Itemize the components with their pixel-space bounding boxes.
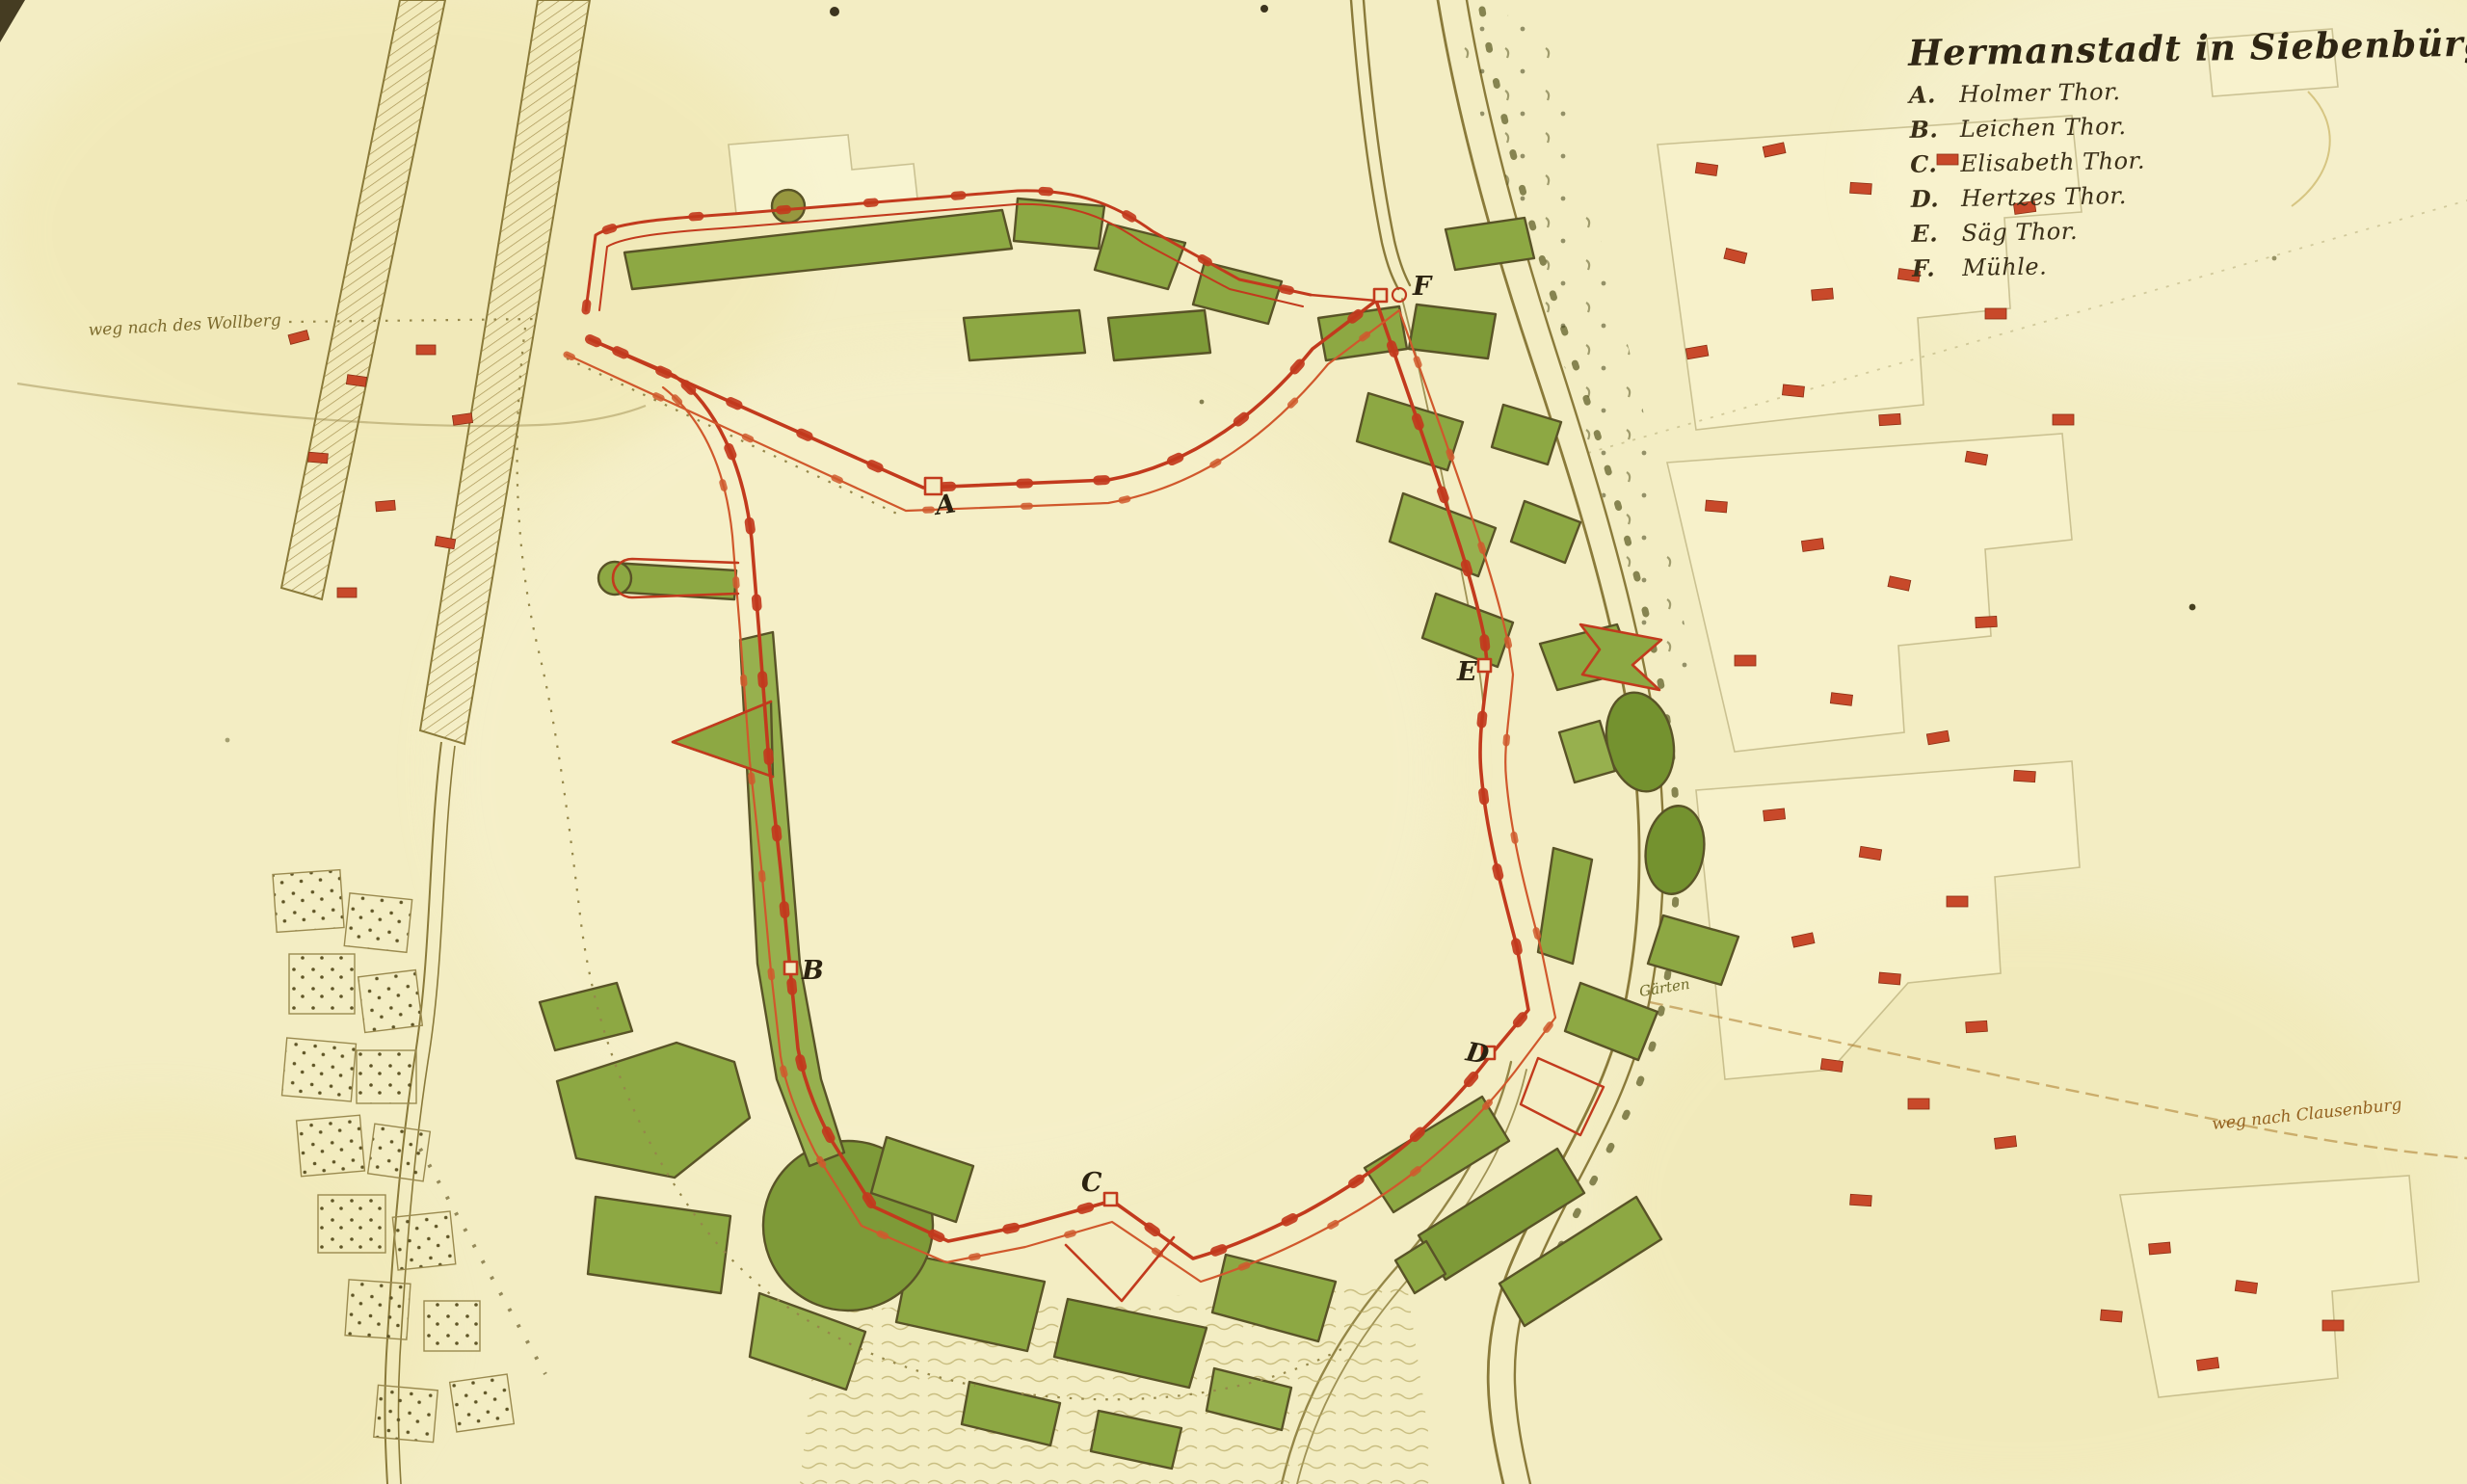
legend-item: A. Holmer Thor.: [1909, 71, 2449, 109]
legend-key: D.: [1911, 184, 1953, 213]
legend-label: Elisabeth Thor.: [1960, 147, 2145, 177]
title-block: Hermanstadt in Siebenbürgen. A. Holmer T…: [1908, 22, 2452, 282]
legend-item: C. Elisabeth Thor.: [1910, 141, 2450, 178]
legend-label: Mühle.: [1962, 252, 2047, 281]
legend-label: Holmer Thor.: [1959, 78, 2121, 108]
legend-key: E.: [1911, 219, 1953, 248]
legend-key: C.: [1910, 149, 1952, 178]
legend-item: E. Säg Thor.: [1911, 210, 2451, 248]
map-canvas: weg nach des Wollberg weg nach Clausenbu…: [0, 0, 2467, 1484]
map-title: Hermanstadt in Siebenbürgen.: [1908, 22, 2449, 74]
legend-item: D. Hertzes Thor.: [1911, 175, 2451, 213]
legend-label: Hertzes Thor.: [1961, 182, 2127, 212]
gate-marker-e: E: [1456, 657, 1477, 687]
legend-label: Leichen Thor.: [1959, 113, 2126, 143]
legend-key: F.: [1912, 253, 1954, 282]
legend-item: B. Leichen Thor.: [1909, 106, 2449, 144]
legend-label: Säg Thor.: [1961, 218, 2078, 247]
legend-key: A.: [1909, 80, 1951, 109]
legend: A. Holmer Thor. B. Leichen Thor. C. Elis…: [1909, 71, 2453, 282]
gate-marker-c: C: [1081, 1168, 1102, 1198]
legend-key: B.: [1909, 115, 1951, 144]
gate-marker-f: F: [1412, 272, 1433, 302]
gate-marker-b: B: [801, 956, 824, 986]
